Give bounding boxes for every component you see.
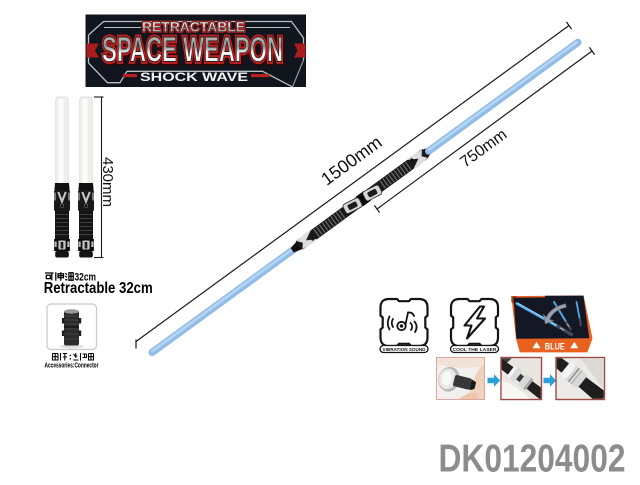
svg-text:BLUE: BLUE [545, 341, 565, 352]
svg-text:Accessories:Connector: Accessories:Connector [45, 363, 99, 370]
svg-text:SHOCK WAVE: SHOCK WAVE [140, 72, 248, 84]
svg-text:COOL THE LASER: COOL THE LASER [453, 347, 498, 353]
svg-text:SPACE WEAPON: SPACE WEAPON [102, 30, 283, 70]
svg-text:Retractable 32cm: Retractable 32cm [44, 280, 153, 297]
svg-text:VIBRATION SOUND: VIBRATION SOUND [383, 347, 427, 353]
svg-text:430mm: 430mm [99, 157, 116, 207]
svg-text:DK01204002: DK01204002 [439, 438, 626, 481]
